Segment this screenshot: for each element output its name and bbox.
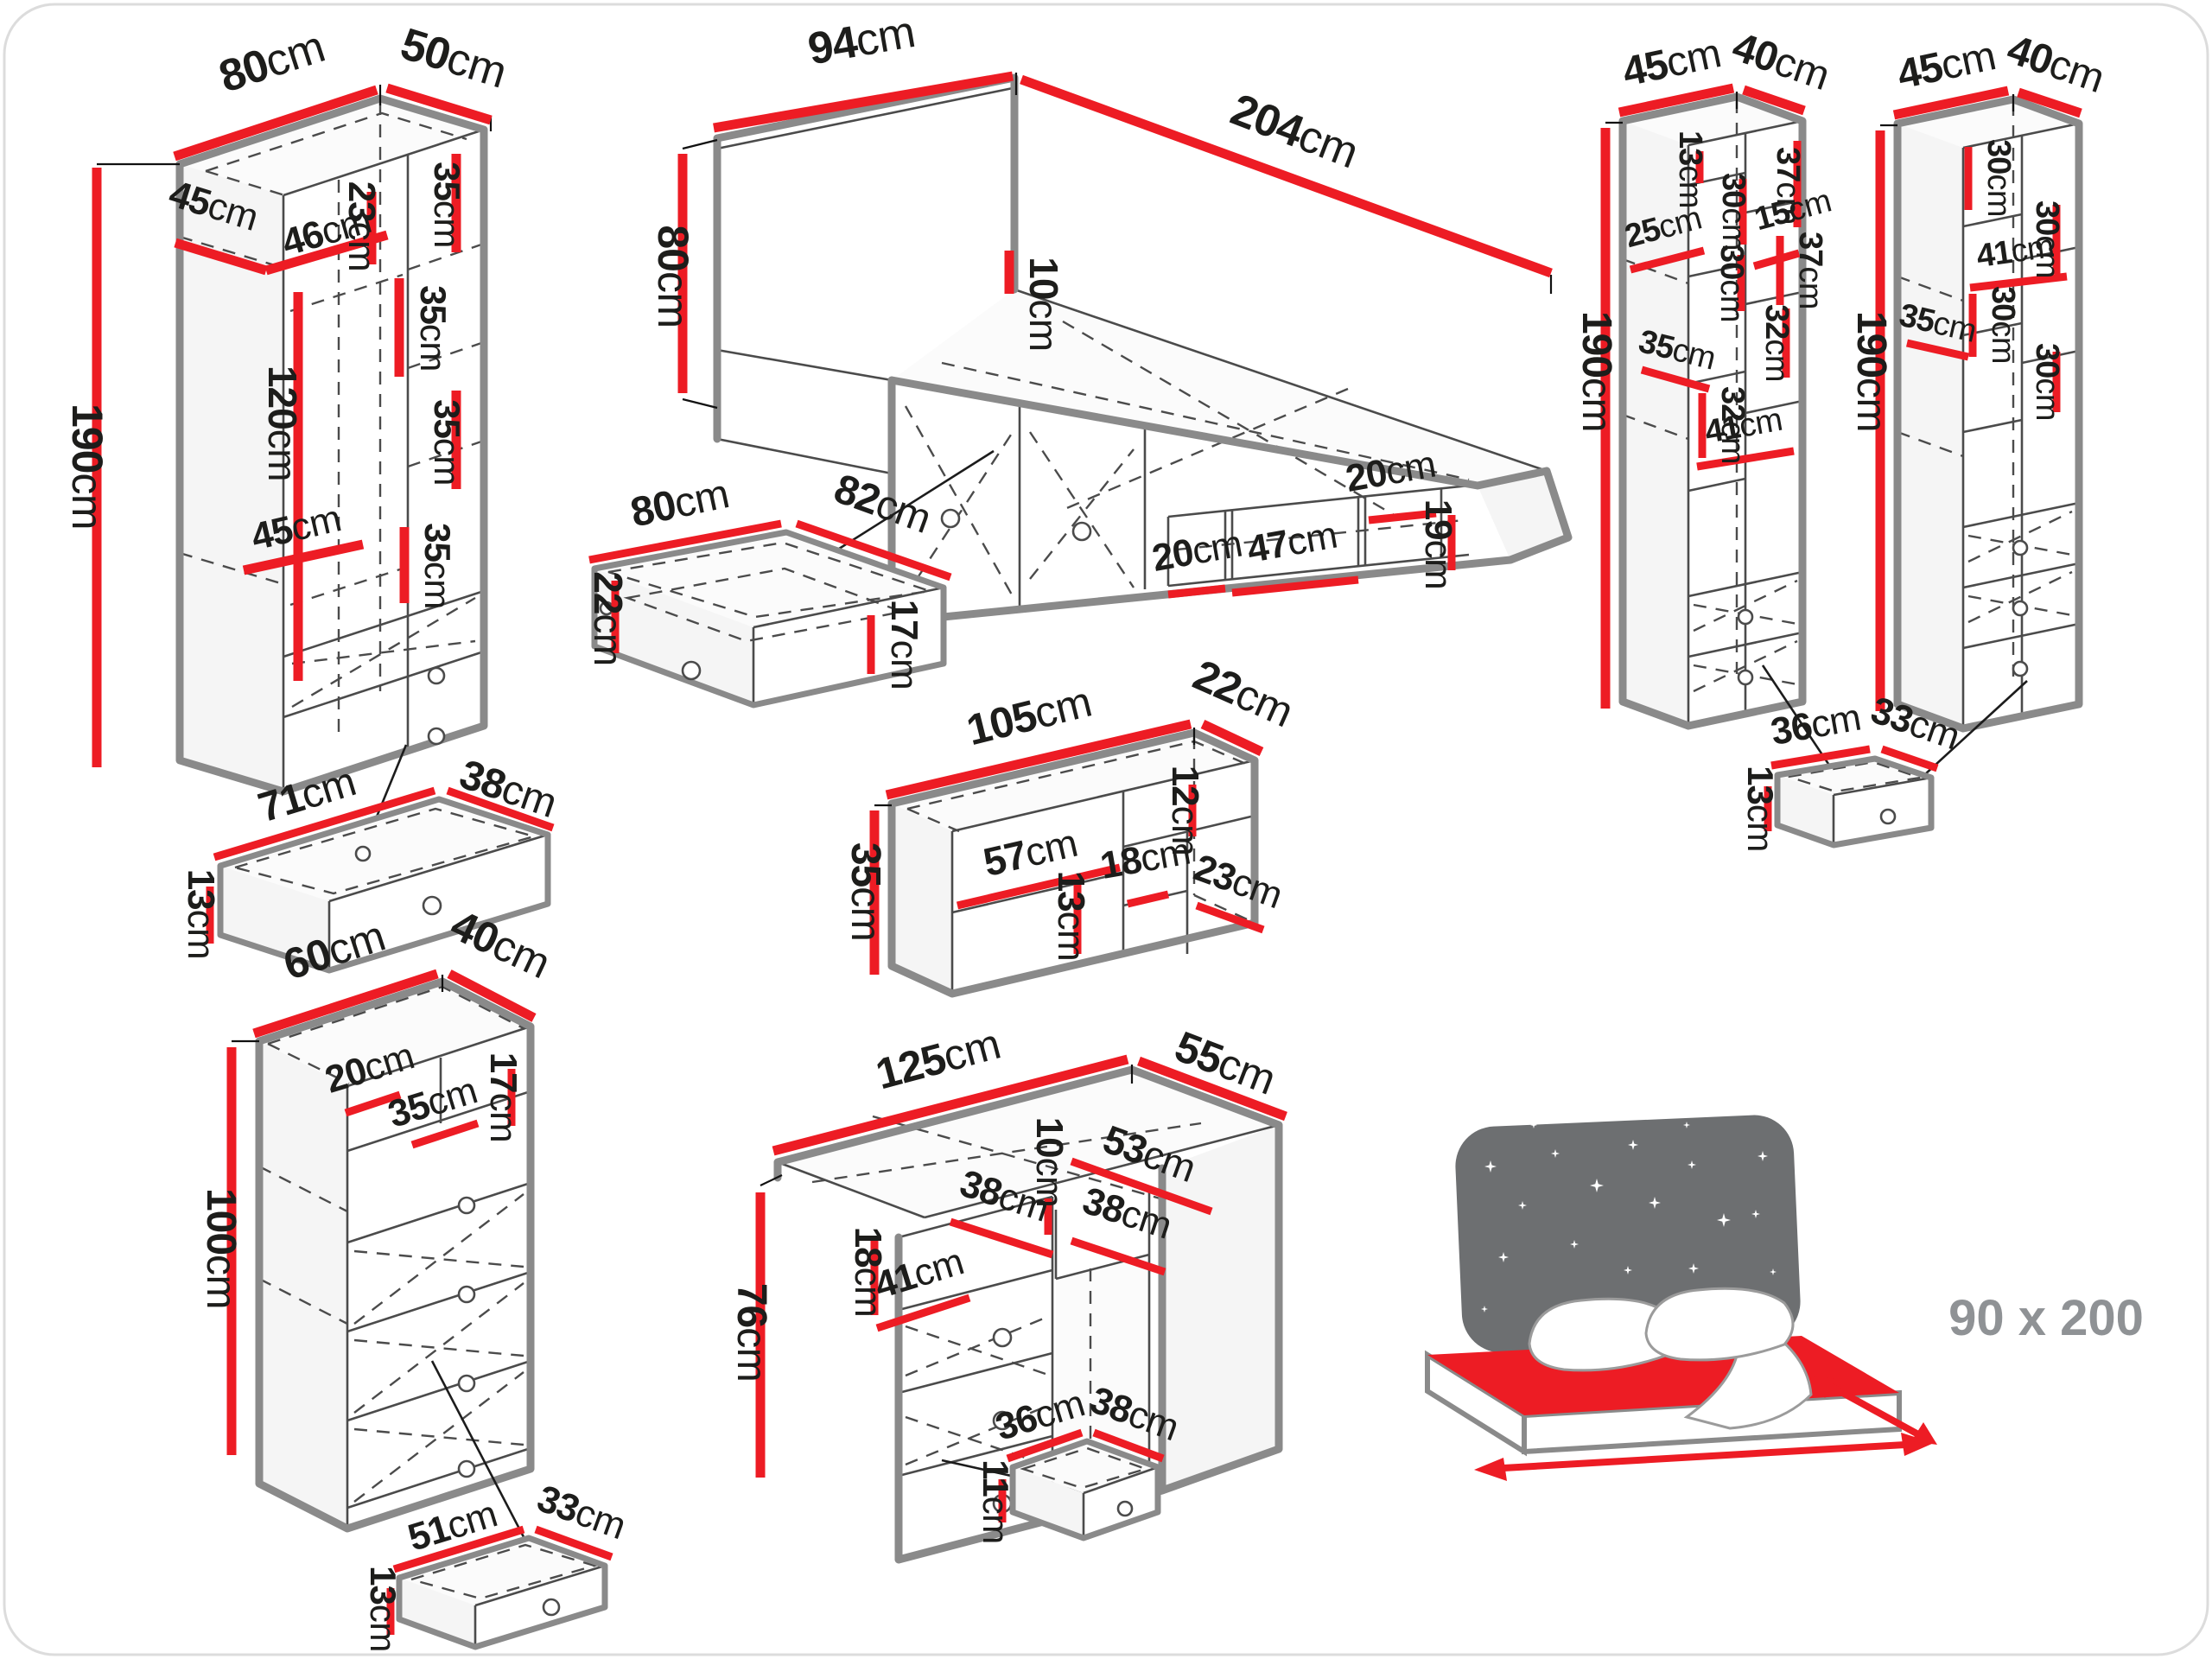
bed-drawer-inner-height-label: 17cm xyxy=(883,600,925,690)
bed-drawer-height-label: 22cm xyxy=(586,571,631,666)
wardrobe-shelf1-label: 35cm xyxy=(427,162,467,248)
bookcase-right-dim6-label: 30cm xyxy=(2029,343,2065,421)
bookcase-right-height-label: 190cm xyxy=(1848,311,1894,432)
wardrobe-hanging-label: 120cm xyxy=(260,365,305,481)
bookcase-left-dim2-label: 30cm xyxy=(1715,173,1751,251)
bookcase-left-dim8-label: 32cm xyxy=(1758,304,1795,382)
chest-drawer-height-label: 13cm xyxy=(363,1566,404,1652)
desk-height-label: 76cm xyxy=(728,1283,774,1382)
shelf-unit-divider-label: 13cm xyxy=(1050,871,1092,962)
bed-niche-height-label: 19cm xyxy=(1417,499,1459,590)
bookcase-drawer-height-label: 13cm xyxy=(1740,766,1781,852)
desk-niche-drop-label: 10cm xyxy=(1028,1117,1071,1208)
bed-headboard-height-label: 80cm xyxy=(649,225,697,327)
bookcase-left-dim6-label: 30cm xyxy=(1713,245,1750,322)
wardrobe-drawer-height-label: 13cm xyxy=(180,869,222,960)
wardrobe-top-shelf-label: 23cm xyxy=(340,181,383,272)
bookcase-left-dim1-label: 13cm xyxy=(1672,130,1708,208)
wardrobe-height-label: 190cm xyxy=(63,404,111,530)
shelf-unit-height-label: 35cm xyxy=(842,842,888,941)
desk-drawer-height-label: 11cm xyxy=(976,1459,1016,1543)
bookcase-left-dim7-label: 37cm xyxy=(1792,232,1828,309)
bed-icon-pillow-2 xyxy=(1646,1288,1793,1360)
chest-niche-height-label: 17cm xyxy=(482,1052,524,1143)
wardrobe-mid-shelf-height-label: 35cm xyxy=(417,523,458,609)
chest-height-label: 100cm xyxy=(198,1188,244,1309)
furniture-dimension-diagram: 80cm 50cm 190cm 45cm 46cm 23cm 35cm 35cm… xyxy=(0,0,2212,1659)
diagram-svg: 80cm 50cm 190cm 45cm 46cm 23cm 35cm 35cm… xyxy=(0,0,2212,1659)
bookcase-right-dim4-label: 30cm xyxy=(1985,286,2021,364)
bookcase-right-dim1-label: 30cm xyxy=(1980,139,2017,217)
bookcase-left-height-label: 190cm xyxy=(1573,311,1619,432)
wardrobe-shelf3-label: 35cm xyxy=(427,399,467,486)
bed-size-label: 90 x 200 xyxy=(1948,1290,2144,1346)
bed-headboard-top-label: 10cm xyxy=(1021,257,1066,352)
wardrobe-shelf2-label: 35cm xyxy=(413,285,454,372)
